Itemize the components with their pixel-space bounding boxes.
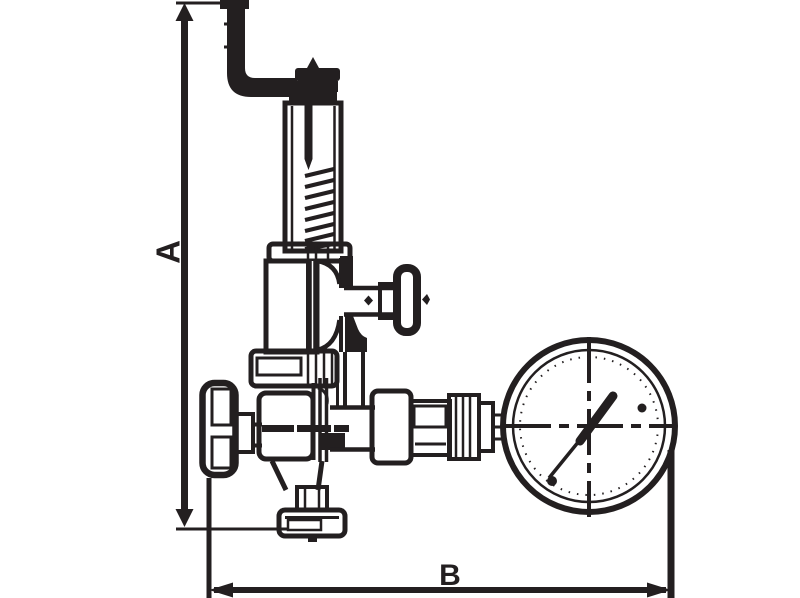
- svg-text:A: A: [150, 240, 187, 264]
- svg-text:B: B: [439, 559, 461, 592]
